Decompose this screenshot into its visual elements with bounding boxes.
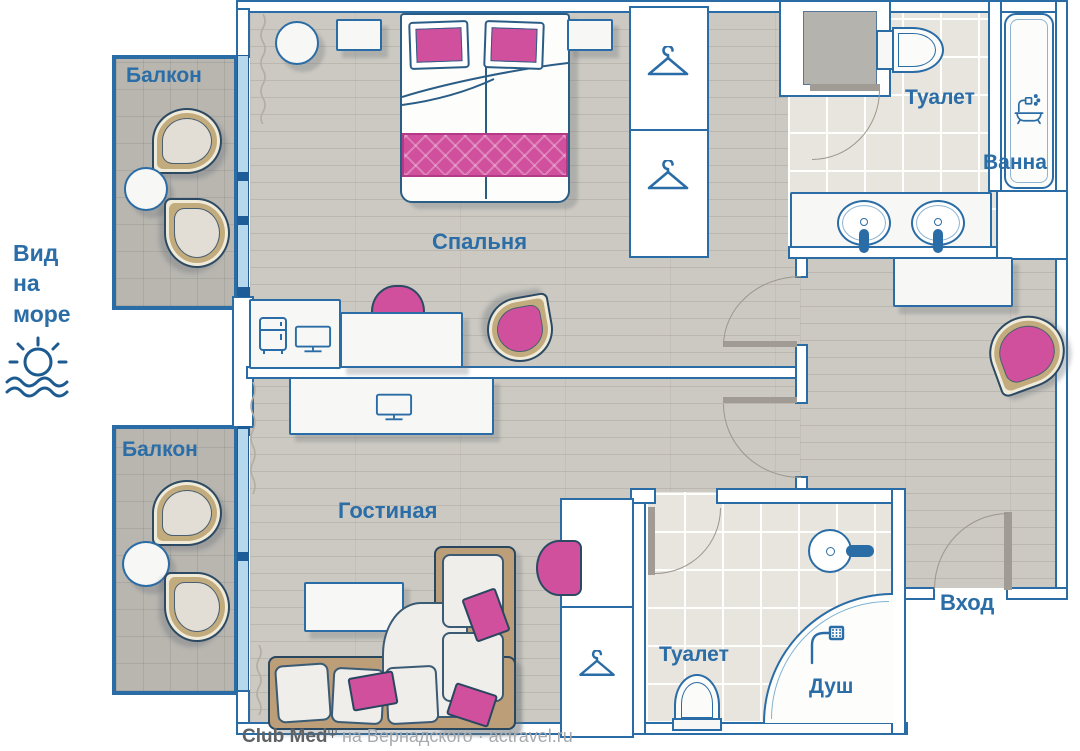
sofa <box>262 544 522 736</box>
wardrobe-divider <box>562 606 632 608</box>
label-living-room: Гостиная <box>338 496 437 525</box>
armchair-living <box>536 540 582 596</box>
door-leaf <box>723 397 797 403</box>
wall-right <box>1055 0 1068 600</box>
pillow-inner <box>490 27 537 63</box>
desk-living <box>289 377 494 435</box>
pillow-inner <box>415 27 462 63</box>
watermark-suffix: на Вернадского · actravel.ru <box>342 726 573 746</box>
bed-pillow <box>408 20 470 70</box>
nightstand <box>567 19 613 51</box>
curtain <box>246 382 260 502</box>
wall-bathroom2-right <box>891 488 906 735</box>
sink-faucet <box>859 229 869 253</box>
window-mullion <box>237 172 249 181</box>
trident-icon: Ψ <box>328 727 338 741</box>
toilet-bottom-tank <box>672 718 722 731</box>
sink-round-drain <box>826 547 835 556</box>
wall-bath-block <box>996 190 1068 260</box>
balcony-chair <box>164 572 230 642</box>
hanger-icon <box>644 46 692 82</box>
label-toilet-top: Туалет <box>905 84 975 112</box>
vanity-counter <box>790 192 992 248</box>
label-entrance: Вход <box>940 588 994 617</box>
balcony-table <box>124 167 168 211</box>
wardrobe-divider <box>631 129 707 131</box>
chair-seat <box>162 118 212 164</box>
floor-plan: Балкон Балкон Вид на море Спальня Гостин… <box>0 0 1080 751</box>
tv-icon <box>294 324 332 354</box>
balcony-chair <box>152 108 222 174</box>
sink-drain <box>934 218 942 226</box>
wall-left-upper <box>236 8 250 58</box>
label-balcony-bottom: Балкон <box>122 436 198 464</box>
sink-round-faucet <box>846 545 874 557</box>
sofa-cushion <box>274 662 332 724</box>
balcony-chair <box>152 480 222 546</box>
door-leaf <box>648 507 655 575</box>
console-table <box>893 257 1013 307</box>
label-toilet-bottom: Туалет <box>659 641 729 669</box>
desk-bedroom <box>340 312 463 368</box>
round-table-bedroom <box>275 21 319 65</box>
shower-head-icon <box>805 623 849 667</box>
bed-blanket <box>402 133 568 177</box>
label-bath: Ванна <box>983 149 1047 177</box>
label-shower: Душ <box>809 673 853 701</box>
balcony-table <box>122 541 170 587</box>
label-sea-view: Вид на море <box>13 238 71 329</box>
window-mullion <box>237 552 249 561</box>
wall-bathroom2-top <box>716 488 906 504</box>
sun-over-waves-icon <box>4 332 70 402</box>
chair-seat <box>174 582 220 632</box>
curtain <box>256 14 270 124</box>
chair-seat <box>174 208 220 258</box>
label-balcony-top: Балкон <box>126 62 202 90</box>
wall-entrance-right <box>1006 587 1068 600</box>
fridge-icon <box>258 316 288 356</box>
wall-stub-middle <box>795 344 808 404</box>
watermark: Club MedΨ на Вернадского · actravel.ru <box>242 726 573 748</box>
sink-faucet <box>933 229 943 253</box>
tv-icon <box>375 392 413 422</box>
wardrobe-bedroom <box>629 6 709 258</box>
bed-pillow <box>483 20 545 70</box>
balcony-chair <box>164 198 230 268</box>
hanger-icon <box>644 160 692 196</box>
label-bedroom: Спальня <box>432 227 527 256</box>
bed <box>400 13 570 203</box>
wardrobe-living <box>560 498 634 738</box>
watermark-brand: Club Med <box>242 726 328 747</box>
bathtub-shower-icon <box>1012 91 1046 125</box>
window-mullion <box>237 216 249 225</box>
shaft <box>803 11 877 85</box>
sink-drain <box>860 218 868 226</box>
hanger-icon <box>576 650 618 682</box>
chair-seat <box>162 490 212 536</box>
nightstand <box>336 19 382 51</box>
toilet-bottom-inner <box>681 682 713 718</box>
pier-cap <box>238 287 250 297</box>
minibar-cabinet <box>249 299 341 369</box>
toilet-top-tank <box>876 30 894 70</box>
